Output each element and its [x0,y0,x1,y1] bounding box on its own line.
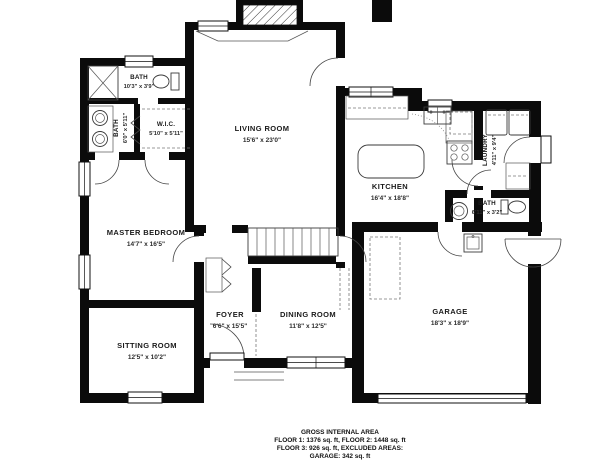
room-labels: BATH 10'3" x 3'9" BATH 6'0" x 5'11" W.I.… [107,74,503,361]
bath-sink [451,203,468,220]
kitchen-island [358,145,424,178]
room-dims-bath-left: 6'0" x 5'11" [123,112,129,143]
garage-storage [370,237,400,299]
corner-cabinet [412,114,450,142]
wall-segment [352,222,364,403]
room-label-living-room: LIVING ROOM [235,124,290,133]
room-label-master-bedroom: MASTER BEDROOM [107,228,186,237]
area-summary-line: GARAGE: 342 sq. ft [195,453,485,461]
floor-plan-page: BATH 10'3" x 3'9" BATH 6'0" x 5'11" W.I.… [0,0,600,463]
door-arc [310,58,338,86]
room-dims-foyer: 6'6" x 15'5" [213,323,248,330]
room-dims-master-bedroom: 14'7" x 16'5" [127,241,165,248]
room-dims-bath-right: 6'11" x 3'2" [472,210,503,216]
wall-segment [185,22,194,232]
double-vanity-sinks [88,106,113,152]
area-summary-line: FLOOR 3: 926 sq. ft, EXCLUDED AREAS: [195,445,485,453]
toilet [501,200,526,214]
front-door-leaf [210,353,244,360]
room-label-bath-top: BATH [130,74,148,81]
room-dims-laundry: 4'11" x 9'4" [492,134,498,165]
laundry-counter [450,112,472,134]
utility-sink [464,234,482,252]
wall-segment [336,22,345,232]
washer [486,110,507,135]
door-arc [145,160,169,184]
shower [88,66,118,100]
window [287,357,345,368]
room-label-dining-room: DINING ROOM [280,310,336,319]
door-arc [504,137,530,163]
window [428,100,452,112]
area-summary-line: FLOOR 1: 1376 sq. ft, FLOOR 2: 1448 sq. … [195,437,485,445]
room-label-bath-right: BATH [478,200,496,207]
room-dims-living-room: 15'6" x 23'0" [243,137,281,144]
room-dims-sitting-room: 12'5" x 10'2" [128,354,166,361]
room-dims-kitchen: 16'4" x 18'8" [371,195,409,202]
hall-closet [206,258,222,292]
exterior-door-leaf [541,136,551,163]
floor-plan-drawing: BATH 10'3" x 3'9" BATH 6'0" x 5'11" W.I.… [0,0,600,425]
window [128,392,162,403]
room-label-foyer: FOYER [216,310,244,319]
room-label-laundry: LAUNDRY [482,133,489,166]
wall-segment [529,101,541,232]
door-arc [95,160,119,184]
room-dims-garage: 18'3" x 18'9" [431,320,469,327]
fireplace-mantel [196,31,308,41]
room-label-kitchen: KITCHEN [372,182,408,191]
bifold-door [222,259,231,292]
room-label-sitting-room: SITTING ROOM [117,341,177,350]
garage-door [378,394,526,403]
wall-segment [80,300,204,308]
wall-segment [194,300,204,403]
room-label-garage: GARAGE [432,307,467,316]
window [349,87,393,97]
chimney-2 [372,0,392,22]
area-summary-line: GROSS INTERNAL AREA [195,429,485,437]
dryer [509,110,530,135]
wall-segment [248,256,338,264]
room-label-bath-left: BATH [113,119,120,137]
room-dims-wic: 5'10" x 5'11" [149,131,183,137]
wall-segment [88,98,186,104]
kitchen-counter [346,96,408,119]
room-label-wic: W.I.C. [157,121,175,128]
area-summary: GROSS INTERNAL AREA FLOOR 1: 1376 sq. ft… [195,429,485,461]
wall-segment [252,268,261,312]
room-dims-dining-room: 11'8" x 12'5" [289,323,327,330]
toilet [153,73,179,90]
window [79,255,90,289]
fireplace-hatch [243,5,297,25]
room-dims-bath-top: 10'3" x 3'9" [124,84,155,90]
window [79,162,90,196]
stove [447,141,472,164]
window [198,21,228,31]
staircase [248,228,338,256]
window [125,56,153,67]
door-arc [438,232,462,256]
